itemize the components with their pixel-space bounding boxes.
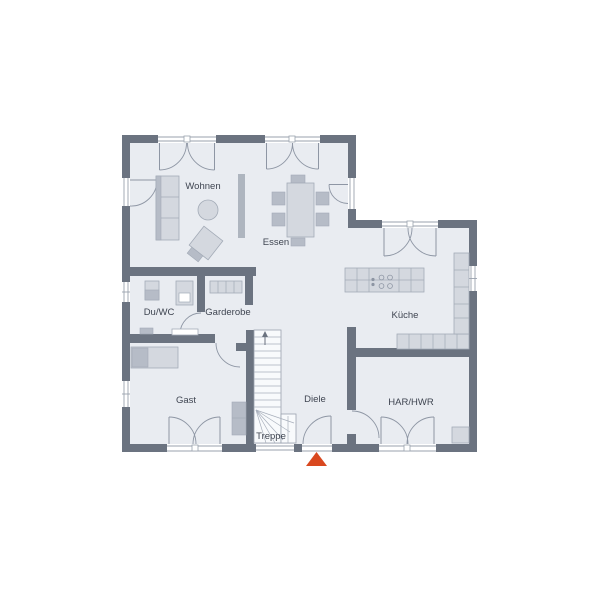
room-label-duwc: Du/WC <box>144 307 175 318</box>
duwc-window <box>122 282 130 302</box>
kitchen-counter <box>397 334 469 349</box>
room-label-wohnen: Wohnen <box>185 181 220 192</box>
coffee-table <box>198 200 218 220</box>
understair-cupboard <box>232 402 246 435</box>
gast-window <box>122 381 130 407</box>
room-label-essen: Essen <box>263 237 289 248</box>
stair-window <box>256 444 294 452</box>
kitchen-tall-units <box>454 253 469 334</box>
entrance-marker-icon <box>306 452 327 466</box>
kueche-window <box>469 266 477 291</box>
har-appliance <box>452 427 469 443</box>
sofa <box>156 176 179 240</box>
kitchen-island <box>345 268 424 292</box>
room-label-kueche: Küche <box>392 310 419 321</box>
room-label-har: HAR/HWR <box>388 397 434 408</box>
floor-plan-page: Wohnen Essen Küche Du/WC Garderobe Gast … <box>0 0 600 600</box>
room-divider-shelf <box>238 174 245 238</box>
room-label-gast: Gast <box>176 395 196 406</box>
room-label-treppe: Treppe <box>256 431 286 442</box>
room-label-diele: Diele <box>304 394 326 405</box>
floor-plan-drawing: Wohnen Essen Küche Du/WC Garderobe Gast … <box>0 0 600 600</box>
room-label-garderobe: Garderobe <box>205 307 250 318</box>
wardrobe <box>210 281 242 293</box>
guest-bed <box>131 347 178 368</box>
